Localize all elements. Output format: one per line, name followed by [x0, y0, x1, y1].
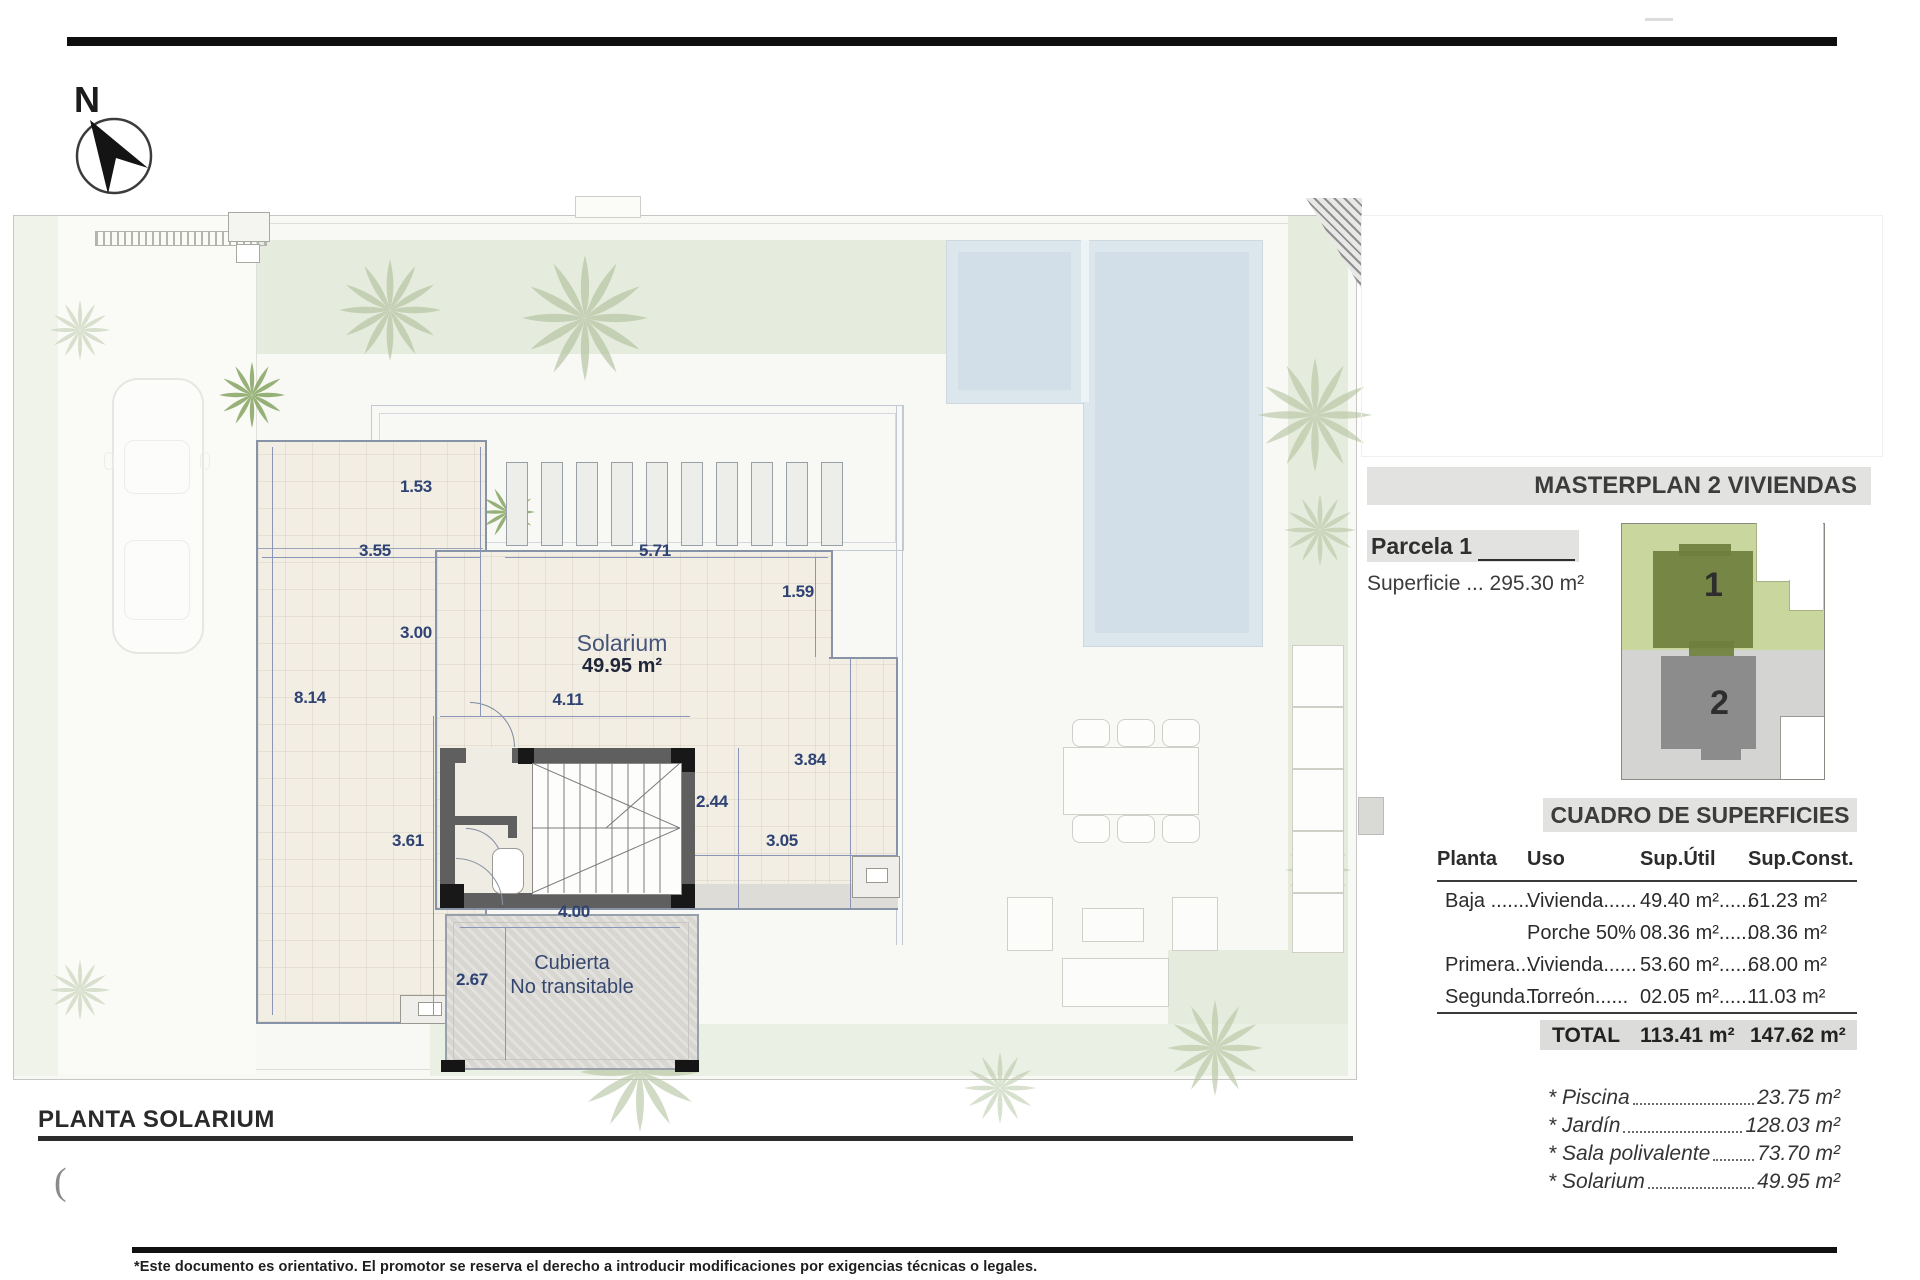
table-row: 61.23 m² — [1748, 890, 1827, 913]
dim-8-14: 8.14 — [278, 688, 342, 708]
extra-label: * Solarium — [1548, 1170, 1645, 1194]
car-mirror-left — [104, 452, 114, 470]
table-row: Vivienda...... — [1527, 890, 1637, 913]
extra-value: 23.75 m² — [1757, 1086, 1840, 1110]
dim-1-53: 1.53 — [384, 477, 448, 497]
solarium-area-label: 49.95 m² — [552, 655, 692, 678]
dot-leader — [1623, 1131, 1742, 1133]
extras-list: * Piscina23.75 m² * Jardín128.03 m² * Sa… — [1548, 1082, 1840, 1194]
house1-footprint-step — [1679, 544, 1731, 556]
dim-line — [815, 557, 816, 657]
cubierta-label-1: Cubierta — [492, 952, 652, 975]
table-row: 11.03 m² — [1748, 986, 1825, 1009]
paving-cell — [1292, 831, 1344, 893]
total-label: TOTAL — [1552, 1024, 1620, 1048]
dim-3-05: 3.05 — [750, 831, 814, 851]
table-row: 02.05 m²...... — [1640, 986, 1752, 1009]
table-row: Primera.... — [1445, 954, 1537, 977]
dim-1-59: 1.59 — [766, 582, 830, 602]
dot-leader — [1713, 1159, 1754, 1161]
core-post-top — [518, 748, 534, 764]
cubierta-footing-right — [675, 1060, 699, 1072]
total-row: TOTAL 113.41 m² 147.62 m² — [1540, 1020, 1857, 1050]
dim-line — [695, 855, 898, 856]
dim-line — [433, 716, 434, 1016]
list-item: * Jardín128.03 m² — [1548, 1110, 1840, 1138]
footer-disclaimer: *Este documento es orientativo. El promo… — [134, 1259, 1534, 1275]
dim-5-71: 5.71 — [623, 541, 687, 561]
core-door-gap — [466, 748, 512, 763]
dining-table — [1063, 747, 1199, 815]
dining-chair — [1117, 719, 1155, 747]
sofa — [1062, 958, 1169, 1007]
masterplan-diagram: 1 2 — [1621, 523, 1825, 780]
paving-cell — [1292, 707, 1344, 769]
dim-3-55: 3.55 — [343, 541, 407, 561]
boundary-niche — [575, 196, 641, 218]
utility-box-inner — [866, 868, 888, 883]
paving-cell — [1292, 893, 1344, 953]
pergola-slats — [506, 462, 836, 544]
dining-chair — [1072, 815, 1110, 843]
dot-leader — [1648, 1187, 1754, 1189]
paving-cell — [1292, 769, 1344, 831]
extra-label: * Sala polivalente — [1548, 1142, 1710, 1166]
extra-label: * Piscina — [1548, 1086, 1630, 1110]
garden-band-top — [256, 240, 950, 354]
stray-paren-mark: ( — [54, 1160, 67, 1204]
table-row: Porche 50% — [1527, 922, 1636, 945]
parcela-label: Parcela 1 — [1367, 530, 1579, 562]
plot2-number: 2 — [1710, 684, 1729, 723]
table-row: Vivienda...... — [1527, 954, 1637, 977]
car-mirror-right — [200, 452, 210, 470]
extra-value: 73.70 m² — [1757, 1142, 1840, 1166]
dim-2-44: 2.44 — [680, 792, 744, 812]
coffee-table — [1082, 908, 1144, 942]
dining-chair — [1117, 815, 1155, 843]
table-row: 08.36 m²...... — [1640, 922, 1752, 945]
dot-leader — [1633, 1103, 1754, 1105]
title-underline — [38, 1136, 1353, 1141]
total-util-value: 113.41 m² — [1640, 1024, 1735, 1048]
house2-footprint-tail — [1701, 746, 1741, 760]
car-roof — [124, 540, 190, 620]
dim-line — [480, 447, 481, 716]
table-row: Baja ........ — [1445, 890, 1535, 913]
dim-3-00: 3.00 — [384, 623, 448, 643]
list-item: * Solarium49.95 m² — [1548, 1166, 1840, 1194]
bath-partition-return — [508, 816, 517, 838]
page-title: PLANTA SOLARIUM — [38, 1106, 275, 1134]
dim-line — [460, 927, 680, 928]
armchair — [1172, 897, 1218, 951]
table-row: 53.60 m²...... — [1640, 954, 1752, 977]
table-row: 68.00 m² — [1748, 954, 1827, 977]
armchair — [1007, 897, 1053, 951]
footer-rule — [132, 1247, 1837, 1253]
table-rule-bottom — [1437, 1012, 1857, 1014]
north-arrow: N — [52, 68, 172, 208]
col-header-sup-const: Sup.Const. — [1748, 848, 1854, 871]
gate-post — [228, 212, 270, 242]
dim-4-00: 4.00 — [542, 902, 606, 922]
floor-plan-page: N — [0, 0, 1920, 1280]
dim-line — [850, 657, 851, 908]
house2-footprint — [1661, 656, 1756, 749]
total-const-value: 147.62 m² — [1750, 1024, 1846, 1048]
plot1-notch-step — [1789, 580, 1823, 611]
dining-chair — [1072, 719, 1110, 747]
dim-line — [272, 447, 273, 1015]
ac-unit — [1358, 797, 1384, 835]
panel-faint-block — [1361, 215, 1883, 457]
north-letter: N — [74, 79, 100, 120]
cubierta-footing-left — [441, 1060, 465, 1072]
col-header-planta: Planta — [1437, 848, 1497, 871]
pool-main-inner — [1095, 252, 1249, 633]
plot1-notch — [1756, 523, 1823, 582]
table-rule-top — [1437, 880, 1857, 882]
extra-value: 128.03 m² — [1745, 1114, 1840, 1138]
paving-cell — [1292, 645, 1344, 707]
masterplan-header: MASTERPLAN 2 VIVIENDAS — [1367, 467, 1871, 505]
pool-upper-inner — [958, 252, 1071, 390]
plot1-number: 1 — [1704, 566, 1723, 605]
dining-chair — [1162, 815, 1200, 843]
list-item: * Piscina23.75 m² — [1548, 1082, 1840, 1110]
extra-label: * Jardín — [1548, 1114, 1620, 1138]
list-item: * Sala polivalente73.70 m² — [1548, 1138, 1840, 1166]
garden-strip-left — [14, 216, 58, 1076]
table-row: 08.36 m² — [1748, 922, 1827, 945]
house1-footprint — [1653, 551, 1753, 648]
dim-line — [440, 716, 690, 717]
plot2-notch — [1780, 716, 1824, 779]
stair-treads — [532, 763, 680, 893]
top-dash-mark — [1645, 18, 1673, 21]
car-windshield — [124, 440, 190, 494]
gate-post-small — [236, 244, 260, 263]
dim-3-61: 3.61 — [376, 831, 440, 851]
parcela-underscore — [1478, 559, 1575, 561]
top-rule — [67, 37, 1837, 46]
superficie-label: Superficie ... 295.30 m² — [1367, 572, 1627, 596]
cubierta-label-2: No transitable — [492, 976, 652, 999]
pool-lane-divider — [1081, 240, 1089, 402]
dim-line — [738, 748, 739, 908]
extra-value: 49.95 m² — [1757, 1170, 1840, 1194]
dining-chair — [1162, 719, 1200, 747]
dim-3-84: 3.84 — [778, 750, 842, 770]
col-header-uso: Uso — [1527, 848, 1565, 871]
solarium-label: Solarium — [552, 630, 692, 657]
col-header-sup-util: Sup.Útil — [1640, 848, 1716, 871]
cuadro-header: CUADRO DE SUPERFICIES — [1543, 798, 1857, 832]
table-row: Torreón...... — [1527, 986, 1628, 1009]
dim-4-11: 4.11 — [536, 690, 600, 710]
terrace-vent-inner — [418, 1002, 442, 1016]
table-row: 49.40 m²...... — [1640, 890, 1752, 913]
